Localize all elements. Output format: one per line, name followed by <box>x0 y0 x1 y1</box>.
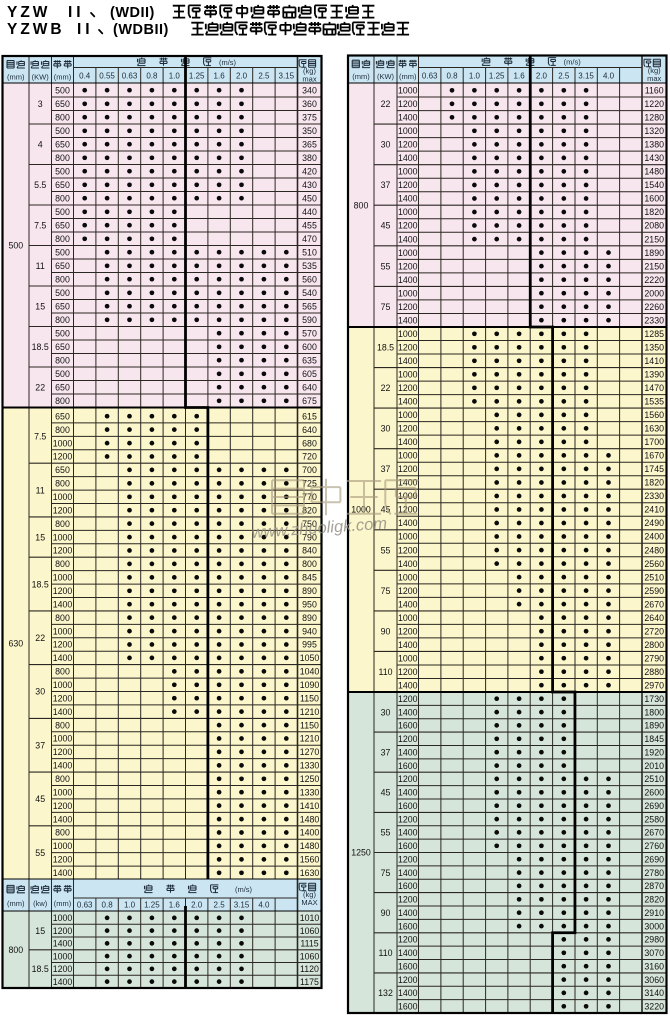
svg-text:30: 30 <box>381 424 391 434</box>
svg-text:1000: 1000 <box>398 207 418 217</box>
svg-text:650: 650 <box>55 411 70 421</box>
svg-text:2600: 2600 <box>644 788 664 798</box>
svg-text:75: 75 <box>381 586 391 596</box>
svg-text:1000: 1000 <box>53 913 73 923</box>
svg-text:1.25: 1.25 <box>489 71 505 80</box>
svg-text:1200: 1200 <box>53 926 73 936</box>
svg-text:800: 800 <box>55 667 70 677</box>
svg-text:2.0: 2.0 <box>236 71 248 80</box>
svg-text:1200: 1200 <box>398 383 418 393</box>
svg-text:1285: 1285 <box>644 329 664 339</box>
svg-text:2330: 2330 <box>644 491 664 501</box>
svg-text:650: 650 <box>55 342 70 352</box>
svg-text:680: 680 <box>302 438 317 448</box>
svg-text:1600: 1600 <box>644 194 664 204</box>
svg-text:3160: 3160 <box>644 961 664 971</box>
svg-text:1200: 1200 <box>53 586 73 596</box>
svg-text:500: 500 <box>55 247 70 257</box>
svg-text:0.63: 0.63 <box>422 71 438 80</box>
svg-text:0.63: 0.63 <box>122 71 138 80</box>
svg-text:430: 430 <box>302 180 317 190</box>
svg-text:1200: 1200 <box>398 343 418 353</box>
svg-text:2490: 2490 <box>644 518 664 528</box>
svg-text:2760: 2760 <box>644 841 664 851</box>
svg-text:37: 37 <box>35 740 45 750</box>
svg-text:(WDII): (WDII) <box>110 5 155 21</box>
svg-text:1.25: 1.25 <box>189 71 205 80</box>
svg-text:22: 22 <box>381 99 391 109</box>
svg-text:1330: 1330 <box>300 761 320 771</box>
svg-text:845: 845 <box>302 573 317 583</box>
svg-text:1200: 1200 <box>53 747 73 757</box>
svg-text:1800: 1800 <box>644 707 664 717</box>
svg-text:890: 890 <box>302 586 317 596</box>
svg-text:1090: 1090 <box>300 680 320 690</box>
svg-text:1600: 1600 <box>398 721 418 731</box>
svg-text:(m/s): (m/s) <box>564 58 582 67</box>
svg-text:800: 800 <box>55 559 70 569</box>
svg-text:950: 950 <box>302 599 317 609</box>
svg-text:1820: 1820 <box>644 207 664 217</box>
svg-text:1330: 1330 <box>300 787 320 797</box>
svg-text:1270: 1270 <box>300 747 320 757</box>
svg-text:590: 590 <box>302 315 317 325</box>
svg-text:15: 15 <box>35 926 45 936</box>
svg-text:1200: 1200 <box>53 693 73 703</box>
svg-text:1400: 1400 <box>398 397 418 407</box>
svg-text:1200: 1200 <box>398 140 418 150</box>
svg-text:4.0: 4.0 <box>258 901 270 910</box>
svg-text:YZW: YZW <box>7 4 50 21</box>
svg-text:1535: 1535 <box>644 397 664 407</box>
svg-text:1400: 1400 <box>398 908 418 918</box>
svg-text:2080: 2080 <box>644 221 664 231</box>
svg-text:1400: 1400 <box>398 234 418 244</box>
svg-text:500: 500 <box>55 288 70 298</box>
svg-text:1410: 1410 <box>300 801 320 811</box>
svg-text:650: 650 <box>55 261 70 271</box>
svg-text:640: 640 <box>302 382 317 392</box>
svg-text:1630: 1630 <box>300 868 320 878</box>
svg-text:1.0: 1.0 <box>124 901 136 910</box>
svg-text:3140: 3140 <box>644 988 664 998</box>
svg-text:1000: 1000 <box>398 329 418 339</box>
svg-text:18.5: 18.5 <box>32 964 49 974</box>
svg-text:2480: 2480 <box>644 545 664 555</box>
svg-text:1600: 1600 <box>398 1002 418 1012</box>
svg-text:630: 630 <box>8 639 23 649</box>
svg-text:1000: 1000 <box>53 626 73 636</box>
svg-text:1480: 1480 <box>300 814 320 824</box>
svg-text:1470: 1470 <box>644 383 664 393</box>
svg-text:11: 11 <box>36 261 45 271</box>
svg-text:max: max <box>647 74 661 83</box>
svg-text:1400: 1400 <box>398 315 418 325</box>
svg-text:700: 700 <box>302 465 317 475</box>
svg-text:55: 55 <box>35 848 45 858</box>
svg-text:1200: 1200 <box>53 964 73 974</box>
svg-text:800: 800 <box>55 315 70 325</box>
svg-text:1160: 1160 <box>645 86 664 96</box>
svg-text:1200: 1200 <box>53 452 73 462</box>
svg-text:1400: 1400 <box>398 356 418 366</box>
svg-text:500: 500 <box>55 166 70 176</box>
svg-text:4: 4 <box>38 139 43 149</box>
svg-text:1.6: 1.6 <box>514 71 526 80</box>
svg-text:1000: 1000 <box>53 492 73 502</box>
svg-text:1560: 1560 <box>644 410 664 420</box>
svg-text:1600: 1600 <box>398 881 418 891</box>
svg-text:800: 800 <box>55 274 70 284</box>
svg-text:(mm): (mm) <box>7 72 25 81</box>
svg-text:890: 890 <box>302 613 317 623</box>
svg-text:650: 650 <box>55 301 70 311</box>
svg-text:3000: 3000 <box>644 921 664 931</box>
svg-text:1540: 1540 <box>644 180 664 190</box>
svg-text:(WDBII): (WDBII) <box>113 22 169 38</box>
svg-text:2670: 2670 <box>644 599 664 609</box>
svg-text:2260: 2260 <box>644 302 664 312</box>
svg-text:1000: 1000 <box>53 680 73 690</box>
svg-text:800: 800 <box>55 153 70 163</box>
svg-text:1700: 1700 <box>644 437 664 447</box>
svg-text:1150: 1150 <box>300 693 319 703</box>
svg-text:1480: 1480 <box>644 167 664 177</box>
svg-text:110: 110 <box>378 948 392 958</box>
svg-text:510: 510 <box>302 247 317 257</box>
svg-text:800: 800 <box>55 774 70 784</box>
svg-text:1200: 1200 <box>398 626 418 636</box>
svg-text:1200: 1200 <box>398 261 418 271</box>
svg-text:1400: 1400 <box>398 828 418 838</box>
svg-text:1200: 1200 <box>398 464 418 474</box>
svg-text:110: 110 <box>378 667 392 677</box>
svg-text:1890: 1890 <box>644 248 664 258</box>
svg-text:2790: 2790 <box>644 653 664 663</box>
svg-text:1115: 1115 <box>300 939 318 949</box>
svg-text:30: 30 <box>381 707 391 717</box>
svg-text:1400: 1400 <box>398 559 418 569</box>
svg-text:995: 995 <box>302 640 317 650</box>
svg-text:500: 500 <box>55 207 70 217</box>
svg-text:1.6: 1.6 <box>169 901 181 910</box>
svg-text:2880: 2880 <box>644 667 664 677</box>
svg-text:1600: 1600 <box>398 841 418 851</box>
svg-text:1.6: 1.6 <box>214 71 226 80</box>
svg-text:132: 132 <box>378 988 393 998</box>
svg-text:2220: 2220 <box>644 275 664 285</box>
svg-text:1200: 1200 <box>53 855 73 865</box>
svg-text:1060: 1060 <box>300 926 320 936</box>
svg-text:MAX: MAX <box>301 898 317 907</box>
svg-text:1000: 1000 <box>398 613 418 623</box>
svg-text:2560: 2560 <box>644 559 664 569</box>
svg-text:3.15: 3.15 <box>234 901 250 910</box>
svg-text:1000: 1000 <box>398 532 418 542</box>
svg-text:1.0: 1.0 <box>469 71 481 80</box>
svg-text:1400: 1400 <box>398 153 418 163</box>
svg-text:800: 800 <box>55 234 70 244</box>
svg-text:1200: 1200 <box>398 180 418 190</box>
svg-text:1350: 1350 <box>644 343 664 353</box>
svg-text:1400: 1400 <box>398 868 418 878</box>
svg-text:2010: 2010 <box>644 761 664 771</box>
svg-text:max: max <box>302 75 316 84</box>
svg-text:1400: 1400 <box>398 113 418 123</box>
svg-text:1400: 1400 <box>398 948 418 958</box>
svg-text:55: 55 <box>381 261 391 271</box>
svg-text:2910: 2910 <box>644 908 664 918</box>
svg-text:1000: 1000 <box>398 370 418 380</box>
svg-text:1200: 1200 <box>398 545 418 555</box>
svg-text:3220: 3220 <box>644 1002 664 1012</box>
svg-text:1060: 1060 <box>300 951 320 961</box>
svg-text:1000: 1000 <box>398 167 418 177</box>
svg-text:18.5: 18.5 <box>32 342 49 352</box>
svg-text:1200: 1200 <box>398 302 418 312</box>
svg-text:1480: 1480 <box>300 841 320 851</box>
svg-text:1000: 1000 <box>398 451 418 461</box>
svg-text:0.4: 0.4 <box>79 71 91 80</box>
svg-text:1220: 1220 <box>644 99 664 109</box>
svg-text:2580: 2580 <box>644 814 664 824</box>
svg-text:675: 675 <box>302 396 317 406</box>
svg-text:2690: 2690 <box>644 801 664 811</box>
svg-text:615: 615 <box>302 411 317 421</box>
svg-text:2330: 2330 <box>644 315 664 325</box>
svg-text:(mm): (mm) <box>54 899 72 908</box>
svg-text:2.0: 2.0 <box>536 71 548 80</box>
svg-text:1400: 1400 <box>398 437 418 447</box>
svg-text:15: 15 <box>35 532 45 542</box>
svg-text:840: 840 <box>302 546 317 556</box>
svg-text:1200: 1200 <box>53 546 73 556</box>
svg-text:1400: 1400 <box>53 977 73 987</box>
svg-text:570: 570 <box>302 328 317 338</box>
svg-text:420: 420 <box>302 166 317 176</box>
svg-text:1380: 1380 <box>644 140 664 150</box>
svg-text:1430: 1430 <box>644 153 664 163</box>
svg-text:535: 535 <box>302 261 317 271</box>
svg-text:1600: 1600 <box>398 921 418 931</box>
svg-text:1200: 1200 <box>53 801 73 811</box>
svg-text:1400: 1400 <box>398 275 418 285</box>
svg-text:500: 500 <box>55 369 70 379</box>
svg-text:1400: 1400 <box>53 814 73 824</box>
svg-text:720: 720 <box>302 452 317 462</box>
svg-text:15: 15 <box>35 301 45 311</box>
svg-text:2.5: 2.5 <box>258 71 270 80</box>
svg-text:1600: 1600 <box>398 801 418 811</box>
svg-text:1000: 1000 <box>398 126 418 136</box>
svg-text:800: 800 <box>55 113 70 123</box>
svg-text:2000: 2000 <box>644 288 664 298</box>
svg-text:2720: 2720 <box>644 626 664 636</box>
svg-text:2870: 2870 <box>644 881 664 891</box>
svg-text:55: 55 <box>381 545 391 555</box>
svg-text:1200: 1200 <box>398 694 418 704</box>
svg-text:1745: 1745 <box>644 464 664 474</box>
svg-text:1120: 1120 <box>300 964 319 974</box>
svg-text:YZWB: YZWB <box>7 21 65 38</box>
svg-text:640: 640 <box>302 425 317 435</box>
svg-text:2150: 2150 <box>644 234 664 244</box>
svg-text:7.5: 7.5 <box>34 432 46 442</box>
svg-text:1200: 1200 <box>398 221 418 231</box>
svg-text:1210: 1210 <box>300 734 320 744</box>
svg-text:2150: 2150 <box>644 261 664 271</box>
svg-text:1600: 1600 <box>398 761 418 771</box>
svg-text:800: 800 <box>55 479 70 489</box>
svg-text:1000: 1000 <box>398 653 418 663</box>
svg-text:1280: 1280 <box>644 113 664 123</box>
svg-text:365: 365 <box>302 139 317 149</box>
svg-text:500: 500 <box>55 328 70 338</box>
svg-text:2980: 2980 <box>644 935 664 945</box>
svg-text:1200: 1200 <box>53 505 73 515</box>
svg-text:1010: 1010 <box>300 913 320 923</box>
svg-text:30: 30 <box>381 140 391 150</box>
svg-text:1200: 1200 <box>398 935 418 945</box>
svg-text:2.0: 2.0 <box>191 901 203 910</box>
svg-text:3: 3 <box>38 99 43 109</box>
svg-text:500: 500 <box>55 86 70 96</box>
svg-text:2690: 2690 <box>644 854 664 864</box>
svg-text:1150: 1150 <box>300 720 319 730</box>
svg-text:0.63: 0.63 <box>77 901 93 910</box>
svg-text:350: 350 <box>302 126 317 136</box>
svg-text:1730: 1730 <box>644 694 664 704</box>
svg-text:1400: 1400 <box>53 653 73 663</box>
svg-text:1410: 1410 <box>644 356 664 366</box>
svg-text:2.5: 2.5 <box>214 901 226 910</box>
svg-text:565: 565 <box>302 301 317 311</box>
svg-text:37: 37 <box>381 464 391 474</box>
svg-text:650: 650 <box>55 465 70 475</box>
svg-text:1000: 1000 <box>53 787 73 797</box>
svg-text:800: 800 <box>55 720 70 730</box>
svg-text:1400: 1400 <box>53 761 73 771</box>
svg-text:22: 22 <box>35 382 45 392</box>
svg-text:II: II <box>77 21 94 38</box>
svg-text:1000: 1000 <box>53 438 73 448</box>
svg-text:(m/s): (m/s) <box>219 58 237 67</box>
svg-text:18.5: 18.5 <box>377 343 394 353</box>
svg-text:1200: 1200 <box>398 774 418 784</box>
svg-text:(mm): (mm) <box>352 72 370 81</box>
svg-text:1390: 1390 <box>644 370 664 380</box>
svg-text:2510: 2510 <box>644 774 664 784</box>
svg-text:1400: 1400 <box>398 680 418 690</box>
svg-text:605: 605 <box>302 369 317 379</box>
svg-text:1200: 1200 <box>398 895 418 905</box>
svg-text:1200: 1200 <box>398 975 418 985</box>
svg-text:2510: 2510 <box>644 572 664 582</box>
svg-text:1000: 1000 <box>398 572 418 582</box>
svg-text:340: 340 <box>302 86 317 96</box>
svg-text:1400: 1400 <box>300 828 320 838</box>
svg-text:360: 360 <box>302 99 317 109</box>
svg-text:1560: 1560 <box>300 855 320 865</box>
svg-text:(mm): (mm) <box>54 72 72 81</box>
svg-text:940: 940 <box>302 626 317 636</box>
svg-text:650: 650 <box>55 180 70 190</box>
svg-text:1400: 1400 <box>398 478 418 488</box>
svg-text:1200: 1200 <box>398 586 418 596</box>
svg-text:3.15: 3.15 <box>578 71 594 80</box>
svg-text:1400: 1400 <box>53 599 73 609</box>
svg-text:75: 75 <box>381 302 391 312</box>
svg-text:18.5: 18.5 <box>32 579 49 589</box>
svg-text:(KW): (KW) <box>377 72 395 81</box>
svg-text:800: 800 <box>354 200 369 210</box>
svg-text:3.15: 3.15 <box>279 71 295 80</box>
svg-text:II: II <box>68 4 85 21</box>
svg-text:1000: 1000 <box>53 841 73 851</box>
svg-text:1000: 1000 <box>398 248 418 258</box>
svg-text:1200: 1200 <box>398 814 418 824</box>
svg-text:560: 560 <box>302 274 317 284</box>
svg-text:1400: 1400 <box>398 194 418 204</box>
svg-text:2.5: 2.5 <box>558 71 570 80</box>
svg-text:1820: 1820 <box>644 478 664 488</box>
svg-text:(mm): (mm) <box>399 72 417 81</box>
svg-text:1000: 1000 <box>398 410 418 420</box>
svg-text:380: 380 <box>302 153 317 163</box>
svg-text:1000: 1000 <box>53 734 73 744</box>
svg-text:1200: 1200 <box>398 854 418 864</box>
svg-text:37: 37 <box>381 747 391 757</box>
svg-text:55: 55 <box>381 828 391 838</box>
svg-text:37: 37 <box>381 180 391 190</box>
svg-text:1400: 1400 <box>398 707 418 717</box>
svg-text:800: 800 <box>55 425 70 435</box>
svg-text:1400: 1400 <box>398 640 418 650</box>
svg-text:2670: 2670 <box>644 828 664 838</box>
svg-text:2590: 2590 <box>644 586 664 596</box>
svg-text:1845: 1845 <box>644 734 664 744</box>
svg-text:375: 375 <box>302 113 317 123</box>
svg-text:0.8: 0.8 <box>446 71 458 80</box>
svg-text:(KW): (KW) <box>32 72 50 81</box>
svg-text:90: 90 <box>381 908 391 918</box>
svg-text:90: 90 <box>381 626 391 636</box>
svg-text:1250: 1250 <box>351 848 371 858</box>
svg-text:1320: 1320 <box>644 126 664 136</box>
svg-text:4.0: 4.0 <box>603 71 615 80</box>
svg-text:30: 30 <box>35 687 45 697</box>
svg-text:1040: 1040 <box>300 667 320 677</box>
svg-text:22: 22 <box>35 633 45 643</box>
svg-text:1400: 1400 <box>53 707 73 717</box>
svg-text:45: 45 <box>381 788 391 798</box>
svg-text:5.5: 5.5 <box>34 180 46 190</box>
svg-text:1600: 1600 <box>398 961 418 971</box>
svg-text:455: 455 <box>302 220 317 230</box>
svg-text:1200: 1200 <box>53 640 73 650</box>
svg-text:(kw): (kw) <box>33 899 48 908</box>
svg-text:22: 22 <box>381 383 391 393</box>
svg-text:650: 650 <box>55 139 70 149</box>
svg-text:3060: 3060 <box>644 975 664 985</box>
svg-text:1000: 1000 <box>53 951 73 961</box>
svg-text:800: 800 <box>302 559 317 569</box>
svg-text:2400: 2400 <box>644 532 664 542</box>
svg-text:2640: 2640 <box>644 613 664 623</box>
svg-text:0.8: 0.8 <box>102 901 114 910</box>
svg-text:2800: 2800 <box>644 640 664 650</box>
svg-text:1920: 1920 <box>644 747 664 757</box>
